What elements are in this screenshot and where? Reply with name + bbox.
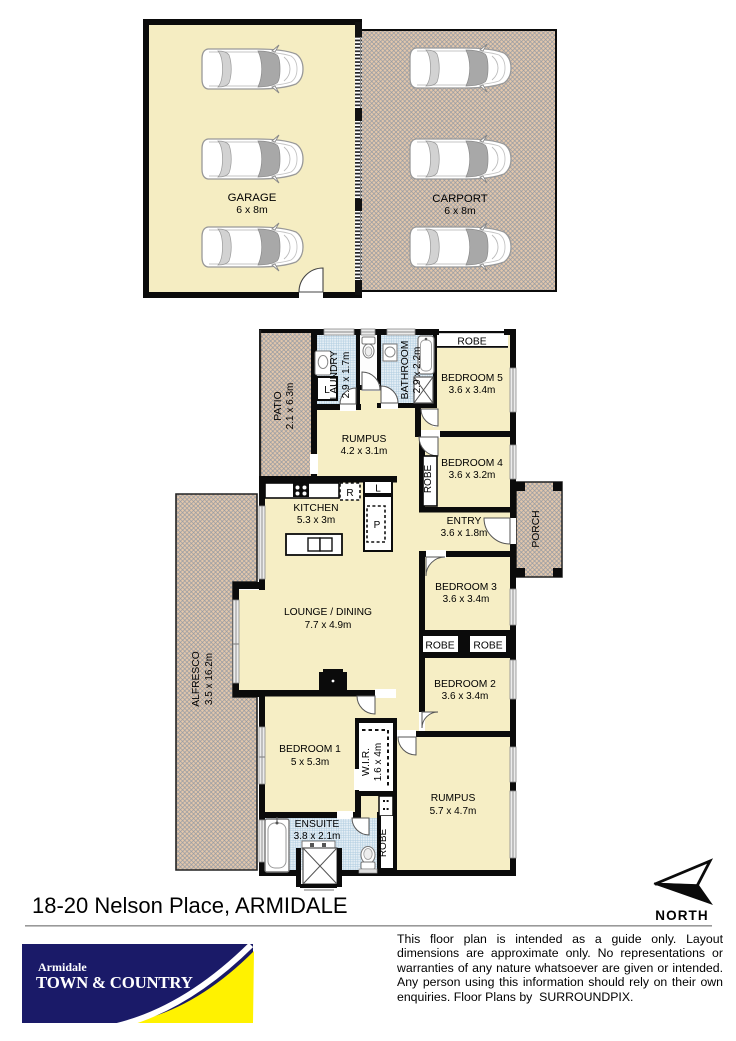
svg-text:ROBE: ROBE [457, 337, 486, 348]
svg-text:NORTH: NORTH [655, 908, 709, 923]
svg-text:5 x 5.3m: 5 x 5.3m [291, 757, 329, 768]
svg-text:2.9 x 2.2m: 2.9 x 2.2m [412, 347, 423, 394]
svg-text:L: L [375, 484, 381, 495]
svg-text:W.I.R.: W.I.R. [361, 748, 372, 776]
svg-text:KITCHEN: KITCHEN [293, 503, 338, 514]
svg-text:GARAGE: GARAGE [228, 192, 277, 204]
svg-text:BEDROOM 4: BEDROOM 4 [441, 458, 503, 469]
svg-text:ROBE: ROBE [425, 641, 454, 652]
svg-text:LAUNDRY: LAUNDRY [329, 350, 340, 399]
svg-text:BEDROOM 1: BEDROOM 1 [279, 744, 341, 755]
svg-text:CARPORT: CARPORT [432, 193, 488, 205]
svg-text:RUMPUS: RUMPUS [431, 793, 476, 804]
svg-text:ENSUITE: ENSUITE [295, 819, 340, 830]
svg-text:3.6 x 3.4m: 3.6 x 3.4m [442, 691, 489, 702]
svg-text:PATIO: PATIO [273, 391, 284, 420]
svg-text:5.3 x 3m: 5.3 x 3m [297, 515, 335, 526]
svg-text:ALFRESCO: ALFRESCO [191, 651, 202, 707]
svg-text:5.7 x 4.7m: 5.7 x 4.7m [430, 806, 477, 817]
svg-text:BEDROOM 3: BEDROOM 3 [435, 582, 497, 593]
svg-text:LOUNGE / DINING: LOUNGE / DINING [284, 607, 372, 618]
svg-text:TOWN & COUNTRY: TOWN & COUNTRY [36, 973, 193, 992]
svg-text:3.8 x 2.1m: 3.8 x 2.1m [294, 831, 341, 842]
svg-text:18-20 Nelson Place, ARMIDALE: 18-20 Nelson Place, ARMIDALE [32, 893, 348, 918]
svg-text:1.6 x 4m: 1.6 x 4m [373, 743, 384, 781]
svg-text:7.7 x 4.9m: 7.7 x 4.9m [305, 620, 352, 631]
svg-text:ENTRY: ENTRY [447, 516, 482, 527]
svg-text:RUMPUS: RUMPUS [342, 434, 387, 445]
svg-text:Armidale: Armidale [38, 960, 87, 974]
svg-text:3.6 x 3.2m: 3.6 x 3.2m [449, 470, 496, 481]
svg-text:3.6 x 1.8m: 3.6 x 1.8m [441, 528, 488, 539]
svg-text:BEDROOM 2: BEDROOM 2 [434, 679, 496, 690]
svg-text:ROBE: ROBE [378, 829, 389, 858]
svg-text:BEDROOM 5: BEDROOM 5 [441, 373, 503, 384]
svg-text:ROBE: ROBE [423, 465, 434, 494]
svg-text:2.9 x 1.7m: 2.9 x 1.7m [341, 352, 352, 399]
svg-text:ROBE: ROBE [473, 641, 502, 652]
svg-text:6 x 8m: 6 x 8m [236, 204, 268, 216]
svg-text:3.6 x 3.4m: 3.6 x 3.4m [443, 594, 490, 605]
svg-text:4.2 x 3.1m: 4.2 x 3.1m [341, 446, 388, 457]
svg-text:2.1 x 6.3m: 2.1 x 6.3m [285, 383, 296, 430]
svg-text:PORCH: PORCH [531, 510, 542, 547]
svg-text:3.5 x 16.2m: 3.5 x 16.2m [204, 653, 215, 705]
svg-text:P: P [374, 520, 381, 531]
svg-text:6 x 8m: 6 x 8m [444, 205, 476, 217]
svg-text:3.6 x 3.4m: 3.6 x 3.4m [449, 385, 496, 396]
svg-text:R: R [346, 488, 353, 499]
svg-text:BATHROOM: BATHROOM [400, 341, 411, 400]
